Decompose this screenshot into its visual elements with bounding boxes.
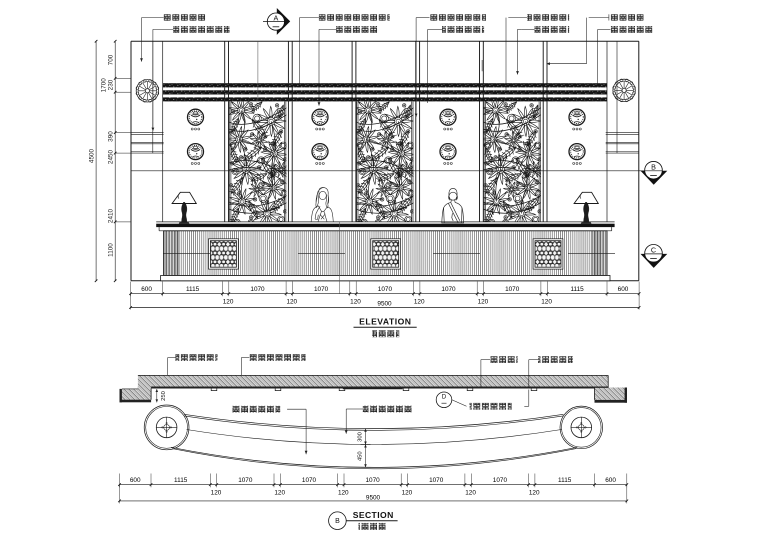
svg-text:SECTION: SECTION — [353, 510, 394, 520]
svg-text:600: 600 — [605, 477, 616, 484]
svg-text:2410: 2410 — [107, 208, 114, 223]
svg-text:120: 120 — [338, 490, 349, 497]
svg-text:1115: 1115 — [570, 286, 584, 293]
svg-text:1070: 1070 — [441, 286, 456, 293]
svg-text:1070: 1070 — [238, 477, 253, 484]
svg-text:1070: 1070 — [429, 477, 444, 484]
svg-text:1115: 1115 — [186, 286, 200, 293]
svg-text:700: 700 — [107, 54, 114, 65]
svg-text:120: 120 — [478, 298, 489, 305]
svg-text:1115: 1115 — [558, 477, 572, 484]
svg-text:1070: 1070 — [250, 286, 265, 293]
svg-text:120: 120 — [529, 490, 540, 497]
svg-text:4500: 4500 — [89, 148, 96, 163]
svg-text:600: 600 — [141, 286, 152, 293]
svg-text:120: 120 — [211, 490, 222, 497]
svg-text:600: 600 — [618, 286, 629, 293]
svg-text:A: A — [274, 14, 279, 23]
svg-text:D: D — [442, 394, 447, 401]
svg-text:ELEVATION: ELEVATION — [359, 316, 411, 326]
svg-text:120: 120 — [414, 298, 425, 305]
svg-text:600: 600 — [130, 477, 141, 484]
svg-text:390: 390 — [107, 131, 114, 142]
svg-text:9500: 9500 — [377, 301, 392, 308]
svg-text:120: 120 — [402, 490, 413, 497]
svg-text:1070: 1070 — [493, 477, 508, 484]
svg-text:450: 450 — [357, 451, 363, 461]
svg-text:120: 120 — [350, 298, 361, 305]
svg-text:C: C — [651, 245, 656, 254]
svg-text:120: 120 — [274, 490, 285, 497]
svg-text:1070: 1070 — [314, 286, 329, 293]
svg-text:2450: 2450 — [107, 149, 114, 164]
svg-text:1100: 1100 — [107, 243, 114, 257]
svg-text:300: 300 — [357, 432, 363, 442]
svg-text:120: 120 — [286, 298, 297, 305]
svg-text:9500: 9500 — [366, 495, 381, 502]
svg-text:120: 120 — [541, 298, 552, 305]
svg-text:B: B — [335, 518, 340, 525]
svg-text:1070: 1070 — [378, 286, 393, 293]
svg-text:250: 250 — [161, 391, 167, 401]
svg-text:120: 120 — [465, 490, 476, 497]
svg-text:B: B — [651, 162, 656, 171]
svg-text:1070: 1070 — [302, 477, 317, 484]
svg-text:120: 120 — [223, 298, 234, 305]
svg-text:1115: 1115 — [174, 477, 188, 484]
svg-text:1070: 1070 — [365, 477, 380, 484]
svg-text:1070: 1070 — [505, 286, 520, 293]
svg-text:230: 230 — [107, 79, 114, 90]
